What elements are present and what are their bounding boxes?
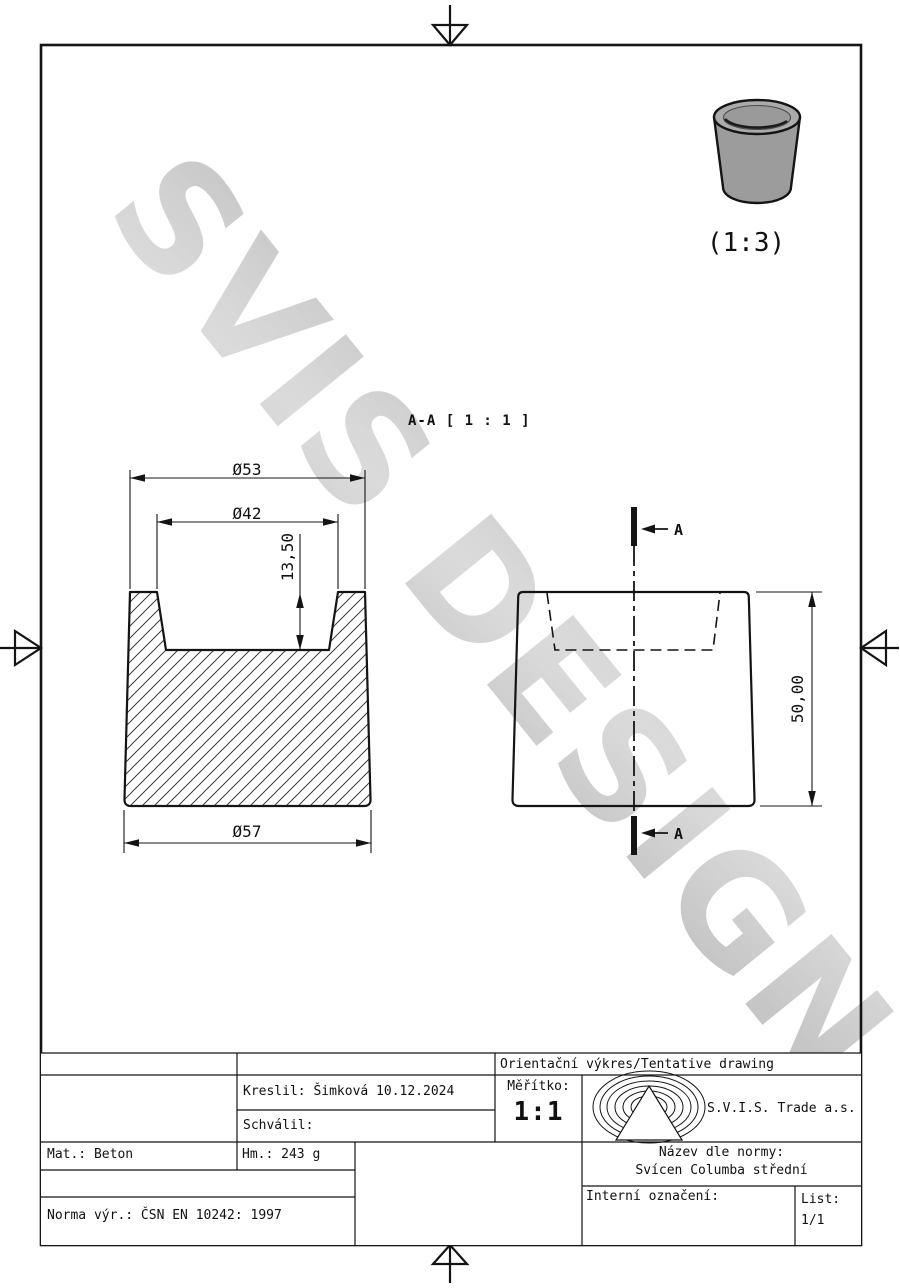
centering-mark-right bbox=[861, 631, 899, 665]
centering-mark-left bbox=[0, 631, 41, 665]
drawing-type-label: Orientační výkres/Tentative drawing bbox=[500, 1057, 774, 1072]
company-name: S.V.I.S. Trade a.s. bbox=[707, 1101, 856, 1116]
section-marker-a-bottom: A bbox=[674, 825, 683, 843]
iso-scale-label: (1:3) bbox=[696, 228, 796, 258]
centering-mark-bottom bbox=[433, 1245, 467, 1283]
dim-label-depth-13-50: 13,50 bbox=[279, 517, 297, 597]
scale-value: 1:1 bbox=[495, 1097, 582, 1127]
standard-field: Norma výr.: ČSN EN 10242: 1997 bbox=[47, 1208, 282, 1223]
material-field: Mat.: Beton bbox=[47, 1147, 133, 1162]
scale-label: Měřítko: bbox=[495, 1079, 582, 1094]
dim-label-diameter-57: Ø57 bbox=[197, 822, 297, 841]
dim-label-height-50: 50,00 bbox=[789, 659, 807, 739]
dim-label-diameter-53: Ø53 bbox=[197, 460, 297, 479]
section-view-label: A-A [ 1 : 1 ] bbox=[408, 413, 531, 429]
approved-by-field: Schválil: bbox=[243, 1118, 313, 1133]
norm-name-label: Název dle normy: bbox=[582, 1145, 861, 1160]
drawn-by-field: Kreslil: Šimková 10.12.2024 bbox=[243, 1084, 454, 1099]
weight-field: Hm.: 243 g bbox=[242, 1147, 320, 1162]
internal-designation-label: Interní označení: bbox=[586, 1189, 719, 1204]
iso-thumbnail bbox=[714, 100, 800, 203]
dim-depth-13-50 bbox=[296, 534, 304, 650]
section-marker-a-top: A bbox=[674, 521, 683, 539]
sheet-number-value: 1/1 bbox=[801, 1213, 824, 1228]
dim-diameter-42 bbox=[157, 514, 338, 589]
norm-name-value: Svícen Columba střední bbox=[582, 1163, 861, 1178]
watermark-text: SVIS DESIGN bbox=[75, 122, 900, 1118]
drawing-sheet: SVIS DESIGN bbox=[0, 0, 900, 1288]
section-cut-outline bbox=[124, 592, 370, 806]
centering-mark-top bbox=[433, 5, 467, 45]
sheet-number-label: List: bbox=[801, 1192, 840, 1207]
